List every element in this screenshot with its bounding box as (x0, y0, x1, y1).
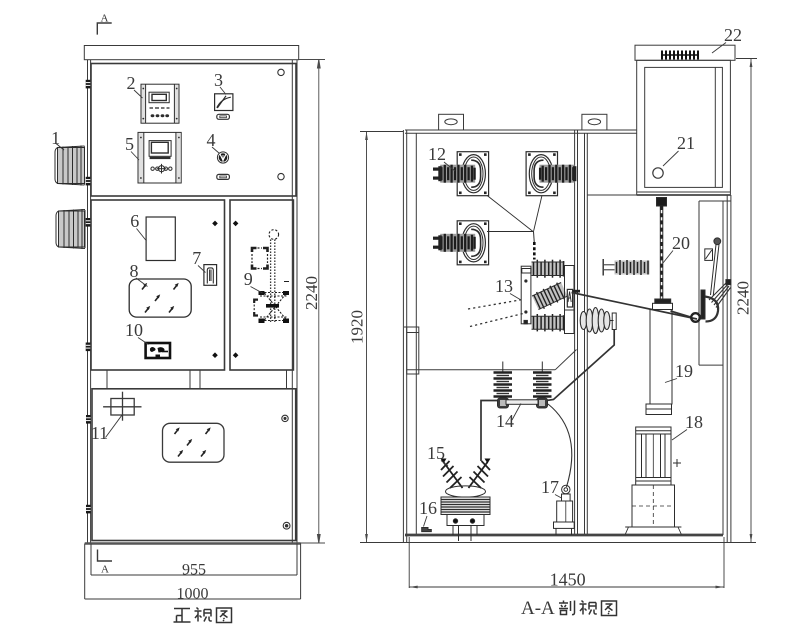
svg-text:11: 11 (91, 423, 108, 443)
svg-text:14: 14 (496, 411, 514, 431)
svg-text:955: 955 (182, 562, 206, 579)
svg-text:1000: 1000 (177, 586, 209, 603)
svg-text:20: 20 (672, 233, 690, 253)
svg-text:4: 4 (207, 130, 216, 150)
svg-text:1920: 1920 (348, 310, 367, 344)
svg-text:7: 7 (192, 248, 201, 268)
svg-text:15: 15 (427, 443, 445, 463)
svg-text:8: 8 (130, 261, 139, 281)
svg-text:6: 6 (130, 211, 139, 231)
svg-text:5: 5 (125, 134, 134, 154)
svg-text:2240: 2240 (734, 281, 753, 315)
svg-text:21: 21 (677, 133, 695, 153)
svg-text:16: 16 (419, 498, 437, 518)
svg-text:17: 17 (541, 477, 559, 497)
svg-text:18: 18 (685, 412, 703, 432)
svg-text:10: 10 (125, 320, 143, 340)
svg-text:22: 22 (724, 25, 742, 45)
svg-text:A-A: A-A (521, 598, 555, 619)
svg-text:A: A (101, 13, 109, 25)
svg-text:19: 19 (675, 361, 693, 381)
svg-text:12: 12 (428, 144, 446, 164)
svg-text:9: 9 (244, 269, 253, 289)
svg-text:2240: 2240 (302, 276, 321, 310)
svg-text:3: 3 (214, 70, 223, 90)
svg-text:1: 1 (51, 128, 60, 148)
svg-text:A: A (101, 564, 109, 576)
svg-text:1450: 1450 (550, 570, 586, 590)
svg-text:13: 13 (495, 276, 513, 296)
